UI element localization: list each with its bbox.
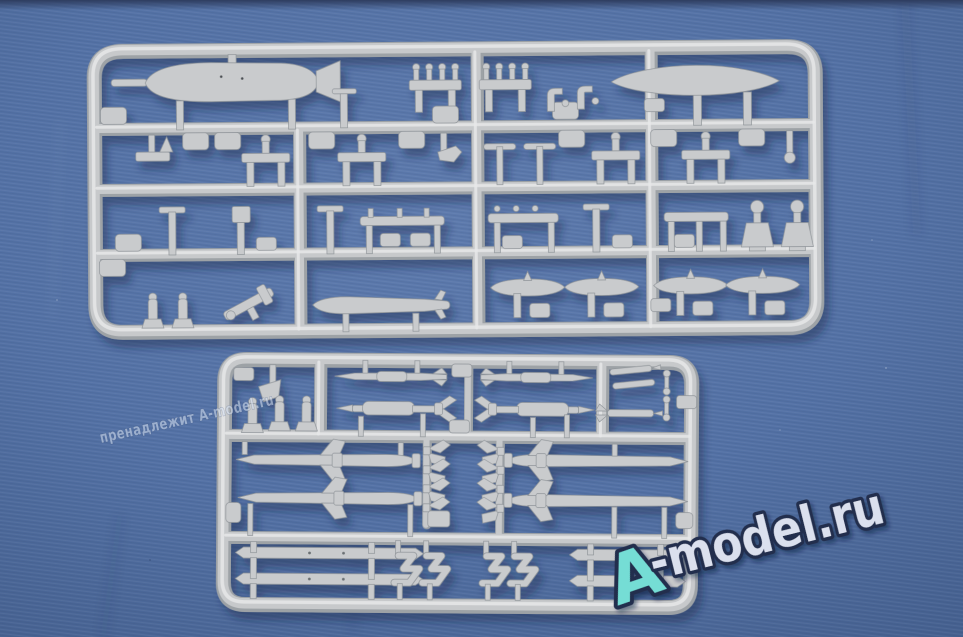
pad-part bbox=[677, 396, 697, 409]
sprue-gate bbox=[369, 542, 375, 553]
pad-part bbox=[674, 234, 694, 247]
sprue-gate bbox=[250, 558, 256, 579]
pad-part bbox=[234, 367, 254, 380]
pad-part bbox=[410, 233, 430, 246]
photo-canvas: пренадлежит A-model.ru A -model.ru bbox=[0, 0, 963, 637]
pad-part bbox=[99, 259, 125, 276]
pad-part bbox=[644, 99, 664, 112]
sprue-gate bbox=[250, 584, 256, 599]
pad-part bbox=[449, 420, 469, 433]
pad-part bbox=[226, 502, 241, 522]
pad-part bbox=[452, 364, 472, 377]
pad-part bbox=[256, 237, 276, 250]
pad-part bbox=[502, 236, 522, 249]
sprue-gate bbox=[242, 442, 247, 455]
sprue-gate bbox=[507, 361, 512, 375]
sprue-gate bbox=[408, 505, 413, 537]
pad-part bbox=[100, 107, 126, 124]
photo-top-edge bbox=[0, 0, 963, 10]
pad-part bbox=[651, 129, 677, 146]
sprue-gate bbox=[587, 586, 593, 601]
sprue-gate bbox=[559, 362, 564, 376]
pad-part bbox=[380, 233, 400, 246]
sprue-gate bbox=[612, 444, 617, 456]
pad-part bbox=[399, 131, 425, 148]
sprue-gate bbox=[588, 544, 594, 555]
sprue-gate bbox=[415, 361, 420, 375]
sprue-gate bbox=[368, 584, 374, 599]
pad-part bbox=[215, 132, 241, 149]
pad-part bbox=[309, 132, 335, 149]
pad-part bbox=[432, 106, 458, 123]
sprue-gate bbox=[251, 542, 257, 553]
sprue-gate bbox=[248, 504, 253, 536]
sprue-gate bbox=[587, 560, 593, 581]
sprue-gate bbox=[368, 558, 374, 579]
pad-part bbox=[739, 129, 765, 146]
pad-part bbox=[651, 298, 671, 311]
pad-part bbox=[428, 511, 450, 527]
sprue-gate bbox=[398, 443, 403, 456]
pad-part bbox=[612, 235, 632, 248]
pad-part bbox=[115, 234, 141, 251]
pad-part bbox=[559, 130, 585, 147]
sprue-gate bbox=[363, 360, 368, 374]
sprue-gate bbox=[612, 507, 617, 538]
pad-part bbox=[183, 133, 209, 150]
photo-model-sprues: пренадлежит A-model.ru A -model.ru bbox=[0, 0, 963, 637]
